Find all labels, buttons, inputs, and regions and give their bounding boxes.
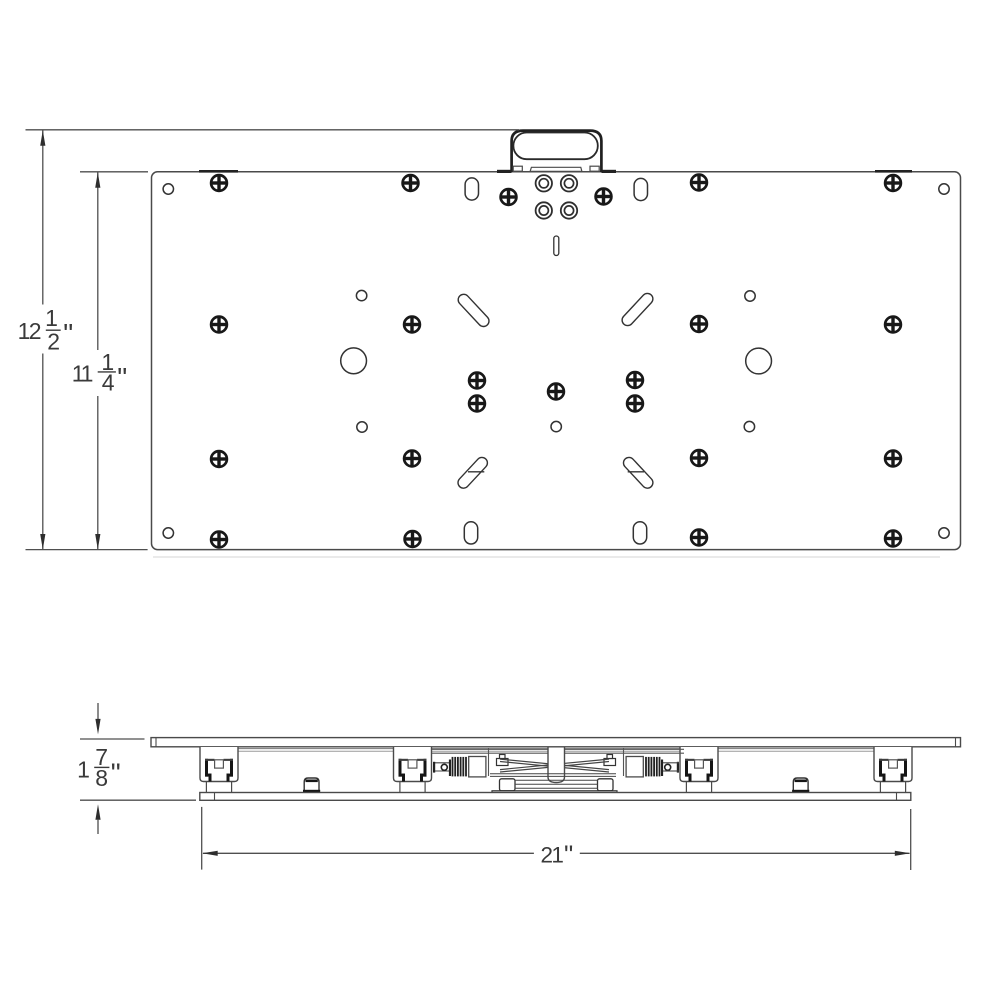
- svg-text:2: 2: [47, 328, 60, 354]
- svg-text:1: 1: [45, 305, 58, 331]
- svg-text:": ": [117, 362, 127, 393]
- svg-text:4: 4: [102, 370, 115, 396]
- svg-text:12: 12: [18, 318, 41, 344]
- svg-text:": ": [63, 318, 73, 349]
- svg-text:": ": [564, 840, 573, 870]
- svg-text:21: 21: [541, 842, 564, 867]
- svg-text:8: 8: [95, 765, 108, 791]
- svg-text:1: 1: [77, 757, 90, 783]
- svg-text:11: 11: [72, 361, 93, 387]
- svg-text:": ": [111, 758, 121, 789]
